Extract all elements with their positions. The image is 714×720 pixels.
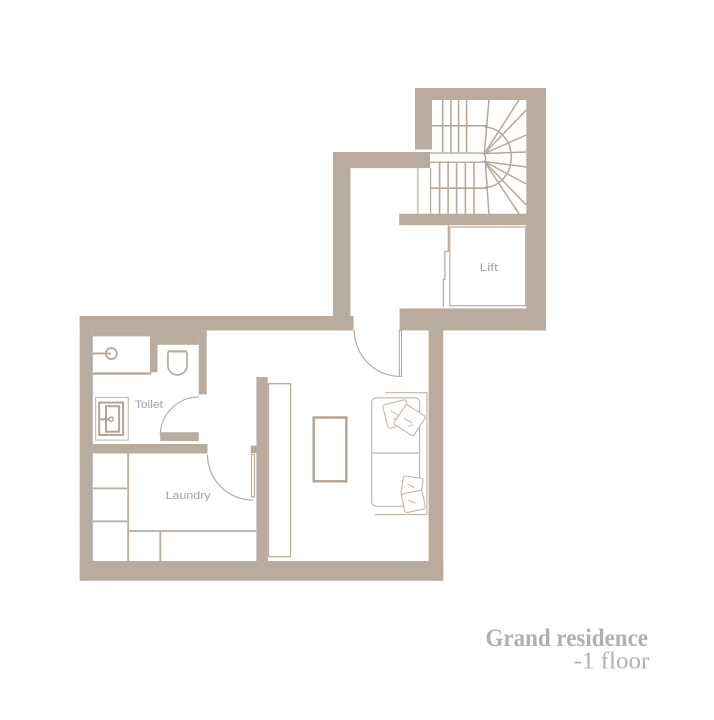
svg-text:Lift: Lift bbox=[480, 262, 498, 274]
svg-text:Laundry: Laundry bbox=[166, 490, 212, 502]
svg-text:-1 floor: -1 floor bbox=[574, 648, 650, 675]
svg-text:Toilet: Toilet bbox=[135, 399, 163, 411]
